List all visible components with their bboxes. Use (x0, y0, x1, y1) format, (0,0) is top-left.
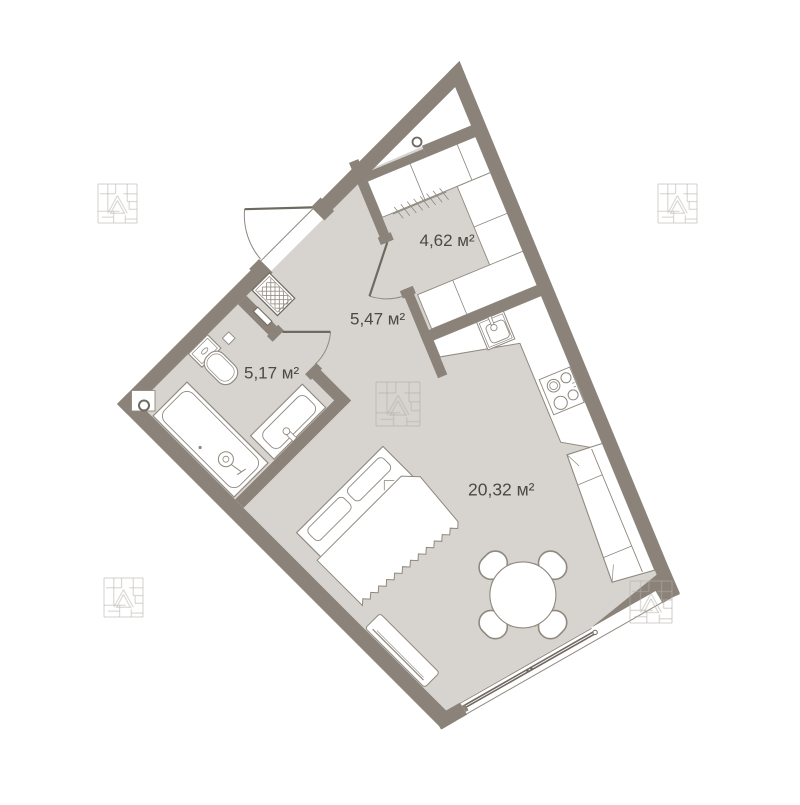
svg-text:5,47 м²: 5,47 м² (350, 310, 405, 329)
svg-text:4,62 м²: 4,62 м² (420, 231, 475, 250)
svg-text:5,17 м²: 5,17 м² (244, 364, 299, 383)
svg-text:20,32 м²: 20,32 м² (468, 480, 535, 500)
